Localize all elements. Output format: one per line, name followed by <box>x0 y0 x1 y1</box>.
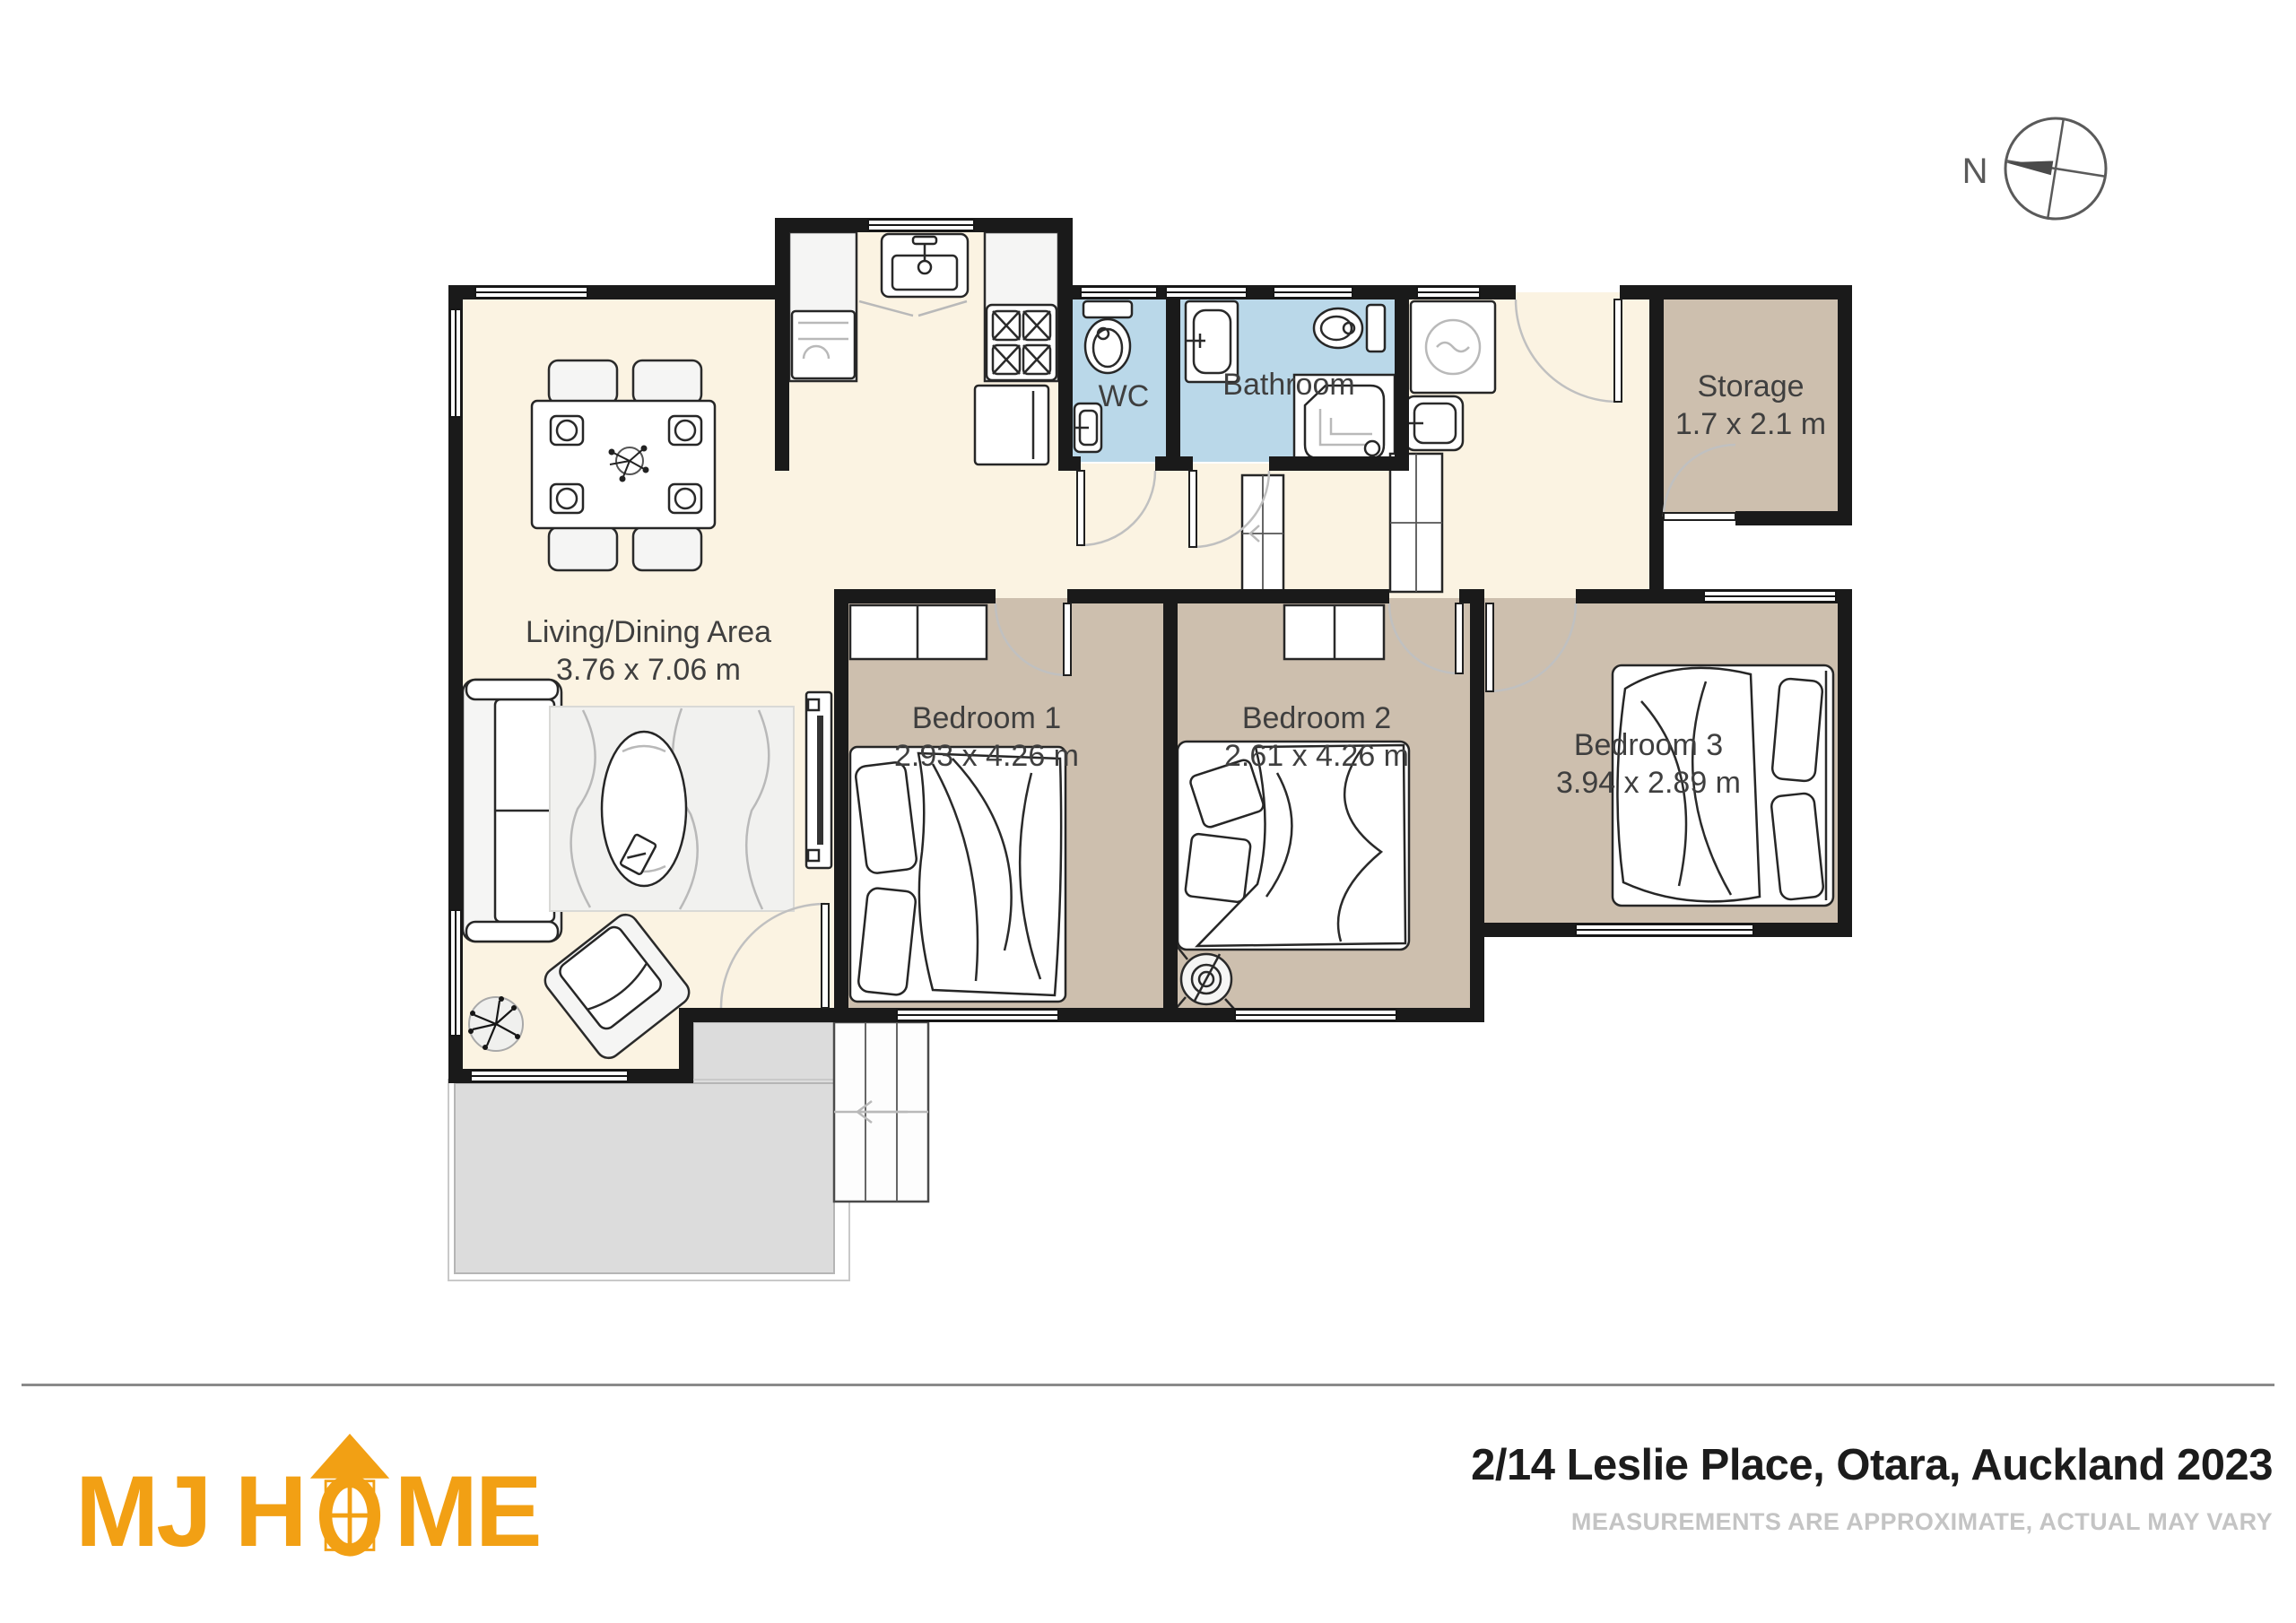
bedroom2-wardrobe <box>1284 605 1384 659</box>
window <box>868 220 974 230</box>
room-storage <box>1658 294 1843 516</box>
floor-plan-svg: Living/Dining Area 3.76 x 7.06 m WC Bath… <box>0 0 2296 1623</box>
fridge-icon <box>975 386 1048 464</box>
compass-icon: N <box>1962 111 2114 226</box>
room-label-bedroom-2: Bedroom 2 <box>1242 701 1391 735</box>
linen-closet <box>1242 475 1283 592</box>
pillow-icon <box>1185 833 1251 903</box>
footer-divider <box>22 1384 2274 1386</box>
room-dims-bedroom-3: 3.94 x 2.89 m <box>1556 766 1741 800</box>
pillow-icon <box>857 887 917 995</box>
room-dims-living: 3.76 x 7.06 m <box>556 653 741 687</box>
toilet-icon <box>1083 301 1132 373</box>
window <box>1417 287 1480 298</box>
room-dims-bedroom-1: 2.93 x 4.26 m <box>894 739 1079 773</box>
exterior-stairs <box>834 1022 928 1202</box>
window <box>471 1071 628 1081</box>
window <box>1166 287 1247 298</box>
bathroom-toilet-icon <box>1314 305 1385 352</box>
room-dims-bedroom-2: 2.61 x 4.26 m <box>1224 739 1409 773</box>
pillow-icon <box>1771 678 1823 782</box>
coffee-table <box>602 732 686 886</box>
room-label-living: Living/Dining Area <box>526 615 771 649</box>
floor-plant-icon <box>468 996 523 1051</box>
wc-sink-icon <box>1074 404 1101 452</box>
floor-plan-page: Living/Dining Area 3.76 x 7.06 m WC Bath… <box>0 0 2296 1623</box>
room-label-storage: Storage <box>1697 369 1804 404</box>
window <box>1235 1010 1396 1020</box>
kitchen-sink-icon <box>882 234 968 297</box>
window <box>475 287 587 298</box>
property-address: 2/14 Leslie Place, Otara, Auckland 2023 <box>1471 1440 2273 1490</box>
bedroom1-wardrobe <box>850 605 987 659</box>
room-floors <box>456 225 1843 1076</box>
stove-icon <box>987 305 1057 380</box>
tv-unit <box>806 692 831 868</box>
brand-logo-text-left: MJ H <box>75 1462 305 1562</box>
dishwasher-icon <box>792 311 855 378</box>
hall-closet <box>1390 454 1442 592</box>
sofa <box>463 680 561 942</box>
tv-icon <box>817 716 823 845</box>
room-label-bathroom: Bathroom <box>1222 368 1354 402</box>
window <box>1274 287 1352 298</box>
duvet <box>918 753 1061 995</box>
window <box>450 309 461 417</box>
window <box>450 910 461 1036</box>
footer-address-block: 2/14 Leslie Place, Otara, Auckland 2023 … <box>1471 1440 2273 1536</box>
brand-logo-house-o-icon <box>307 1428 393 1562</box>
brand-logo-text-right: ME <box>395 1462 540 1562</box>
window <box>1704 591 1836 602</box>
measurements-disclaimer: MEASUREMENTS ARE APPROXIMATE, ACTUAL MAY… <box>1471 1508 2273 1536</box>
room-label-wc: WC <box>1099 379 1150 413</box>
bed-1 <box>850 747 1065 1002</box>
pillow-icon <box>1770 793 1824 900</box>
room-label-bedroom-1: Bedroom 1 <box>912 701 1061 735</box>
washing-machine-icon <box>1411 301 1495 393</box>
compass-north-label: N <box>1962 152 1988 191</box>
room-label-bedroom-3: Bedroom 3 <box>1574 728 1723 762</box>
window <box>897 1010 1058 1020</box>
window <box>1576 924 1753 935</box>
room-dims-storage: 1.7 x 2.1 m <box>1675 407 1826 441</box>
laundry-sink-icon <box>1405 396 1463 450</box>
window <box>1081 287 1157 298</box>
brand-logo: MJ H ME <box>75 1428 540 1562</box>
